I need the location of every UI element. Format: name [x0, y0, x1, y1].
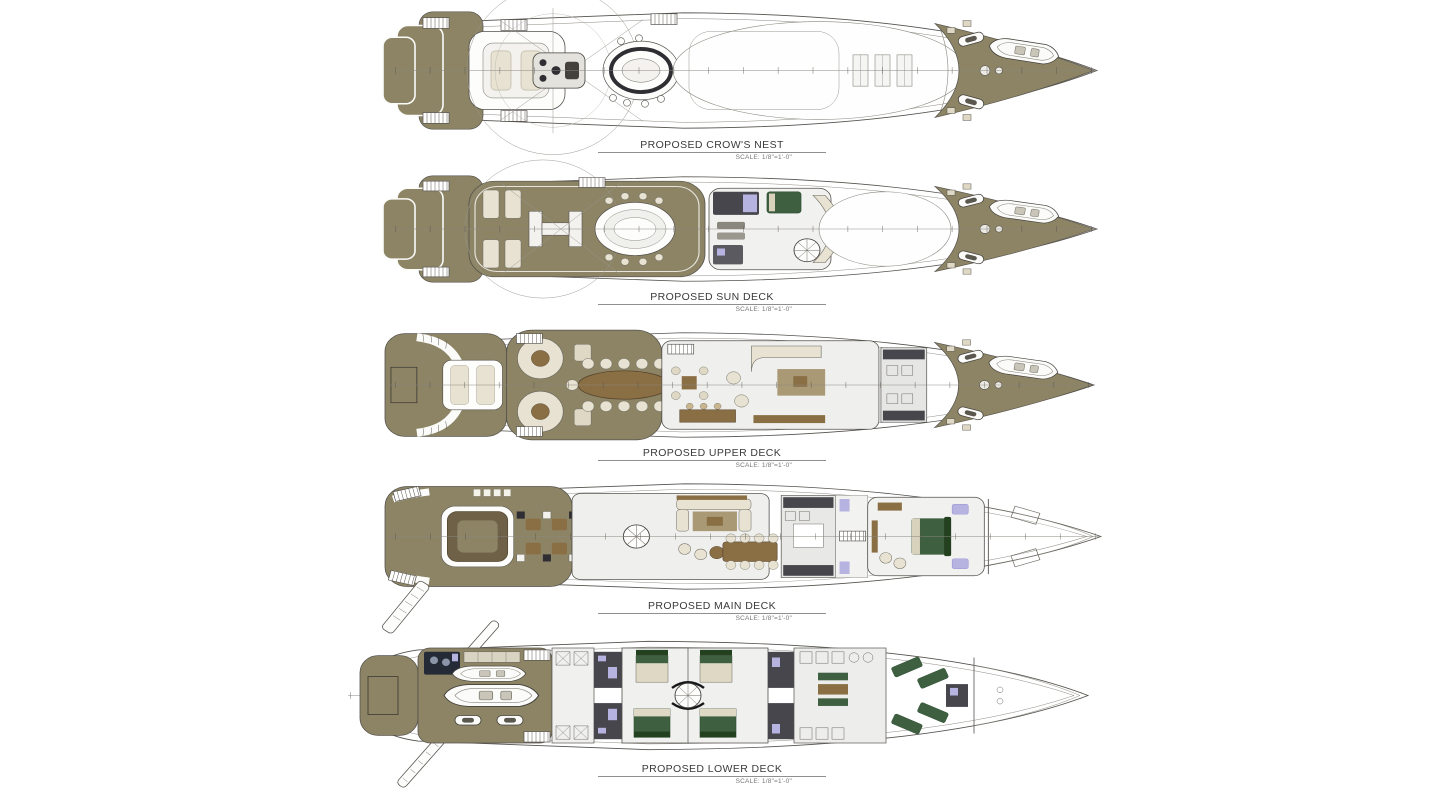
machinery-space — [552, 648, 594, 743]
scale-note: SCALE: 1/8"=1'-0" — [598, 154, 826, 161]
caption-lower-deck: PROPOSED LOWER DECK SCALE: 1/8"=1'-0" — [598, 763, 826, 785]
caption-upper-deck: PROPOSED UPPER DECK SCALE: 1/8"=1'-0" — [598, 447, 826, 469]
scale-note: SCALE: 1/8"=1'-0" — [598, 615, 826, 622]
deck-title: PROPOSED MAIN DECK — [598, 600, 826, 612]
caption-main-deck: PROPOSED MAIN DECK SCALE: 1/8"=1'-0" — [598, 600, 826, 622]
scale-note: SCALE: 1/8"=1'-0" — [598, 778, 826, 785]
crew-mess-galley — [794, 648, 886, 743]
stored-jetski — [455, 715, 481, 725]
swim-platform — [360, 656, 418, 736]
stored-jetski — [497, 715, 523, 725]
deck-plan-upper-deck — [383, 323, 1100, 447]
scale-note: SCALE: 1/8"=1'-0" — [598, 306, 826, 313]
bar-counter — [680, 410, 736, 422]
tender-garage — [418, 648, 552, 743]
scale-note: SCALE: 1/8"=1'-0" — [598, 462, 826, 469]
caption-crows-nest: PROPOSED CROW'S NEST SCALE: 1/8"=1'-0" — [598, 139, 826, 161]
deck-title: PROPOSED LOWER DECK — [598, 763, 826, 775]
passerelle-gangway — [381, 580, 431, 634]
deck-plan-lower-deck — [348, 629, 1093, 762]
yacht-deck-plans-sheet: PROPOSED CROW'S NEST SCALE: 1/8"=1'-0" — [0, 0, 1436, 808]
lavender-fixture — [743, 194, 757, 212]
deck-plan-main-deck — [383, 474, 1107, 599]
deck-title: PROPOSED SUN DECK — [598, 291, 826, 303]
stored-tender — [444, 685, 538, 707]
deck-plan-crows-nest — [383, 2, 1103, 139]
deck-title: PROPOSED CROW'S NEST — [598, 139, 826, 151]
stored-rib — [452, 666, 526, 681]
spiral-stair — [794, 239, 820, 262]
deck-plan-sun-deck — [383, 167, 1103, 291]
deck-title: PROPOSED UPPER DECK — [598, 447, 826, 459]
guest-cabins — [622, 648, 768, 743]
caption-sun-deck: PROPOSED SUN DECK SCALE: 1/8"=1'-0" — [598, 291, 826, 313]
